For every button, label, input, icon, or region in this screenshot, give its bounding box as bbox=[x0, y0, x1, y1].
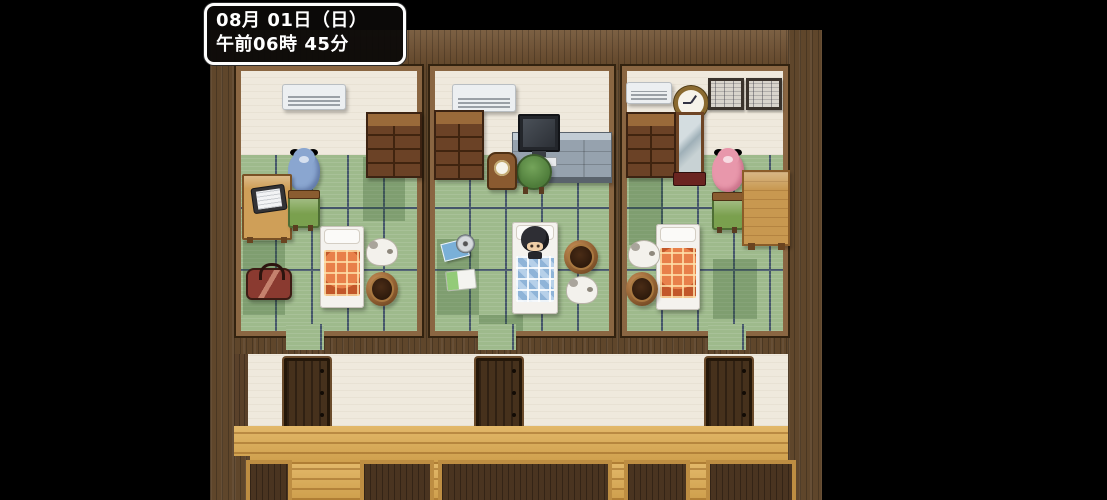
exit-strip-right bbox=[708, 324, 746, 350]
pillow bbox=[660, 227, 696, 242]
stair-opening bbox=[360, 460, 434, 500]
pillow bbox=[324, 229, 360, 244]
right-wall bbox=[788, 30, 822, 500]
green-stool bbox=[516, 154, 552, 190]
sleeping-dog bbox=[566, 276, 598, 304]
door-left-bedroom[interactable] bbox=[284, 358, 330, 432]
computer-monitor bbox=[518, 114, 560, 152]
green-chair bbox=[712, 196, 744, 230]
hud-date: 08月 01日（日） bbox=[216, 9, 394, 33]
hallway-floor bbox=[234, 426, 788, 464]
air-conditioner bbox=[282, 84, 346, 110]
low-table bbox=[742, 170, 790, 246]
stair-opening bbox=[246, 460, 292, 500]
stair-opening bbox=[438, 460, 612, 500]
green-chair bbox=[288, 194, 320, 228]
mirror-base bbox=[673, 172, 706, 186]
alarm-clock bbox=[487, 152, 517, 190]
framed-picture bbox=[746, 78, 782, 110]
standing-mirror bbox=[676, 112, 704, 176]
pink-teddy-bear bbox=[712, 152, 744, 192]
red-bag bbox=[246, 268, 292, 300]
woven-basket bbox=[626, 272, 658, 306]
sleeping-dog bbox=[628, 240, 660, 268]
character-hands bbox=[528, 252, 542, 259]
laptop bbox=[250, 184, 287, 214]
blue-blanket bbox=[516, 256, 554, 302]
exit-strip-left bbox=[286, 324, 324, 350]
bed bbox=[656, 224, 700, 310]
stair-opening bbox=[624, 460, 690, 500]
dresser bbox=[626, 112, 676, 178]
dresser bbox=[366, 112, 422, 178]
blue-teddy-bear bbox=[288, 152, 320, 192]
white-book bbox=[445, 268, 477, 291]
door-right-bedroom[interactable] bbox=[706, 358, 752, 432]
player-character[interactable] bbox=[521, 226, 549, 252]
air-conditioner bbox=[626, 82, 672, 104]
left-wall bbox=[210, 30, 236, 500]
sleeping-dog bbox=[366, 238, 398, 266]
bed bbox=[320, 226, 364, 308]
stair-opening bbox=[706, 460, 796, 500]
dresser bbox=[434, 110, 484, 180]
framed-picture bbox=[708, 78, 744, 110]
hud-time: 午前06時 45分 bbox=[216, 33, 394, 57]
orange-blanket bbox=[324, 250, 360, 296]
exit-strip-middle bbox=[478, 324, 516, 350]
air-conditioner bbox=[452, 84, 516, 112]
woven-basket bbox=[564, 240, 598, 274]
orange-blanket bbox=[660, 248, 696, 298]
woven-basket bbox=[366, 272, 398, 306]
game-viewport[interactable]: 08月 01日（日） 午前06時 45分 bbox=[0, 0, 1107, 500]
tatami-dark-patch bbox=[713, 259, 757, 319]
hud-window: 08月 01日（日） 午前06時 45分 bbox=[204, 3, 406, 65]
hallway-pillar bbox=[234, 354, 248, 426]
door-middle-bedroom[interactable] bbox=[476, 358, 522, 432]
